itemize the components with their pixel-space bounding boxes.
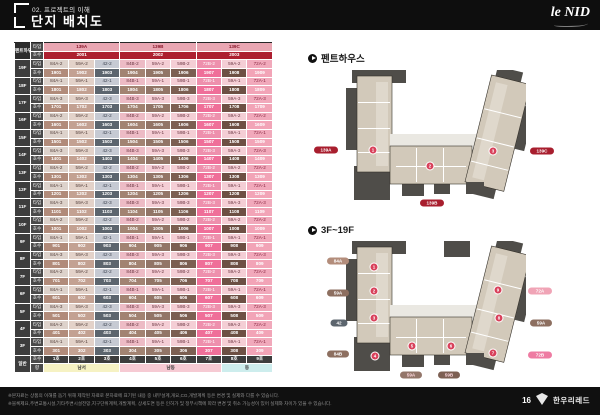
type-cell: 84B-1 bbox=[120, 286, 145, 295]
type-cell: 72B-2 bbox=[196, 321, 221, 330]
unit-cell: 803 bbox=[94, 260, 119, 269]
unit-cell: 1803 bbox=[94, 86, 119, 95]
unit-cell: 609 bbox=[247, 294, 273, 303]
floor-label: 5F bbox=[15, 303, 31, 320]
unit-number-badge: 4 bbox=[371, 352, 380, 361]
plan-block bbox=[443, 148, 444, 182]
type-cell: 59A-2 bbox=[222, 216, 247, 225]
type-cell: 72B-2 bbox=[196, 112, 221, 121]
type-cell: 59A-1 bbox=[69, 77, 94, 86]
penthouse-floor-plan-svg bbox=[346, 70, 526, 210]
page-number: 16 bbox=[522, 396, 531, 405]
general-label: 일반 bbox=[15, 355, 31, 372]
type-cell: 72B-1 bbox=[196, 77, 221, 86]
row-label-unit: 호수 bbox=[31, 208, 44, 217]
type-cell: 84A-2 bbox=[44, 216, 69, 225]
type-cell: 59A-2 bbox=[222, 321, 247, 330]
type-cell: 84B-3 bbox=[120, 95, 145, 104]
type-cell: 84A-2 bbox=[44, 60, 69, 69]
floor-label: 7F bbox=[15, 268, 31, 285]
unit-cell: 301 bbox=[44, 347, 69, 356]
type-cell: 59B-2 bbox=[171, 60, 196, 69]
general-unit-cell: 5호 bbox=[145, 355, 170, 364]
type-cell: 59A-3 bbox=[145, 303, 170, 312]
unit-cell: 1808 bbox=[222, 86, 247, 95]
plan-block bbox=[390, 305, 476, 317]
plan-block bbox=[444, 241, 470, 257]
unit-number-badge: 3 bbox=[370, 314, 379, 323]
brand-logo: le NID bbox=[551, 5, 590, 21]
type-cell: 72A-2 bbox=[247, 60, 273, 69]
plan-block bbox=[466, 353, 484, 365]
unit-cell: 306 bbox=[171, 347, 196, 356]
table-row: 10F타입84A-259A-242-284B-259A-259B-272B-25… bbox=[15, 216, 273, 225]
unit-cell: 1204 bbox=[120, 190, 145, 199]
row-label-unit: 호수 bbox=[31, 347, 44, 356]
floor-label: 15F bbox=[15, 129, 31, 146]
unit-cell: 1508 bbox=[222, 138, 247, 147]
table-row: 일반호수1호2호3호4호5호6호7호8호9호 bbox=[15, 355, 273, 364]
unit-type-pill: 59A bbox=[327, 290, 349, 297]
unit-cell: 408 bbox=[222, 329, 247, 338]
unit-cell: 1206 bbox=[171, 190, 196, 199]
type-cell: 72B-3 bbox=[196, 147, 221, 156]
type-cell: 84A-2 bbox=[44, 164, 69, 173]
unit-cell: 701 bbox=[44, 277, 69, 286]
type-cell: 59A-3 bbox=[145, 199, 170, 208]
type-cell: 59B-3 bbox=[171, 147, 196, 156]
disclaimer-text: ※본자료는 상품의 이해를 돕기 위해 제작된 자료로 본자료에 표기된 내용 … bbox=[8, 392, 332, 408]
row-label-unit: 호수 bbox=[31, 225, 44, 234]
unit-cell: 1903 bbox=[94, 69, 119, 78]
type-cell: 84A-1 bbox=[44, 77, 69, 86]
type-cell: 42-1 bbox=[94, 182, 119, 191]
table-row: 호수100110021003100410051006100710081009 bbox=[15, 225, 273, 234]
type-cell: 42-2 bbox=[94, 112, 119, 121]
unit-cell: 502 bbox=[69, 312, 94, 321]
row-label-type: 타입 bbox=[31, 286, 44, 295]
floors-plan-heading-label: 3F~19F bbox=[321, 225, 354, 236]
unit-cell: 1506 bbox=[171, 138, 196, 147]
unit-cell: 1806 bbox=[171, 86, 196, 95]
unit-cell: 1704 bbox=[120, 103, 145, 112]
unit-cell: 1706 bbox=[171, 103, 196, 112]
type-cell: 42-3 bbox=[94, 95, 119, 104]
plan-block bbox=[390, 317, 472, 355]
unit-cell: 1909 bbox=[247, 69, 273, 78]
unit-cell: 302 bbox=[69, 347, 94, 356]
unit-cell: 1606 bbox=[171, 121, 196, 130]
unit-cell: 1007 bbox=[196, 225, 221, 234]
unit-cell: 1504 bbox=[120, 138, 145, 147]
type-cell: 59A-2 bbox=[69, 216, 94, 225]
unit-type-pill: 84A bbox=[327, 258, 349, 265]
unit-cell: 1108 bbox=[222, 208, 247, 217]
type-cell: 59A-3 bbox=[145, 147, 170, 156]
type-cell: 59A-1 bbox=[69, 286, 94, 295]
table-row: 호수110111021103110411051106110711081109 bbox=[15, 208, 273, 217]
unit-cell: 508 bbox=[222, 312, 247, 321]
general-unit-cell: 7호 bbox=[196, 355, 221, 364]
type-cell: 72A-2 bbox=[247, 321, 273, 330]
type-cell: 42-2 bbox=[94, 216, 119, 225]
plan-block bbox=[416, 319, 417, 353]
bracket-decoration-top bbox=[14, 3, 29, 13]
floor-label: 8F bbox=[15, 251, 31, 268]
type-cell: 59A-3 bbox=[222, 199, 247, 208]
unit-cell: 804 bbox=[120, 260, 145, 269]
brand-diamond-icon bbox=[536, 396, 548, 405]
type-cell: 59B-2 bbox=[171, 268, 196, 277]
unit-cell: 601 bbox=[44, 294, 69, 303]
penthouse-plan-heading: 펜트하우스 bbox=[308, 51, 365, 65]
direction-cell: 남동 bbox=[120, 364, 222, 373]
unit-cell: 904 bbox=[120, 242, 145, 251]
table-row: 12F타입84A-159A-142-184B-159A-159B-172B-15… bbox=[15, 182, 273, 191]
unit-cell: 1402 bbox=[69, 155, 94, 164]
footer-bar: ※본자료는 상품의 이해를 돕기 위해 제작된 자료로 본자료에 표기된 내용 … bbox=[0, 387, 600, 415]
row-label-unit: 호수 bbox=[31, 242, 44, 251]
play-icon bbox=[308, 54, 317, 63]
floor-label: 3F bbox=[15, 338, 31, 355]
unit-cell: 1708 bbox=[222, 103, 247, 112]
unit-cell: 1306 bbox=[171, 173, 196, 182]
direction-cell: 동 bbox=[222, 364, 273, 373]
floor-label: 11F bbox=[15, 199, 31, 216]
table-row: 호수150115021503150415051506150715081509 bbox=[15, 138, 273, 147]
unit-type-pill: 59A bbox=[400, 372, 422, 379]
type-cell: 59A-1 bbox=[145, 234, 170, 243]
unit-cell: 901 bbox=[44, 242, 69, 251]
type-cell: 59A-3 bbox=[69, 251, 94, 260]
unit-cell: 509 bbox=[247, 312, 273, 321]
unit-cell: 1908 bbox=[222, 69, 247, 78]
row-label-unit: 호수 bbox=[31, 103, 44, 112]
type-cell: 84B-3 bbox=[120, 251, 145, 260]
type-cell: 59A-2 bbox=[145, 216, 170, 225]
unit-cell: 706 bbox=[171, 277, 196, 286]
type-cell: 72A-3 bbox=[247, 199, 273, 208]
row-label-unit: 호수 bbox=[31, 190, 44, 199]
type-cell: 59B-3 bbox=[171, 199, 196, 208]
type-cell: 59B-1 bbox=[171, 338, 196, 347]
type-cell: 59A-3 bbox=[145, 251, 170, 260]
table-row: 17F타입84A-359A-342-384B-359A-359B-372B-35… bbox=[15, 95, 273, 104]
unit-cell: 1901 bbox=[44, 69, 69, 78]
unit-cell: 902 bbox=[69, 242, 94, 251]
type-cell: 84B-1 bbox=[120, 234, 145, 243]
unit-cell: 1407 bbox=[196, 155, 221, 164]
unit-cell: 401 bbox=[44, 329, 69, 338]
unit-cell: 1005 bbox=[145, 225, 170, 234]
table-row: 호수901902903904905906907908909 bbox=[15, 242, 273, 251]
type-cell: 59A-2 bbox=[69, 268, 94, 277]
unit-type-pill: 84B bbox=[327, 351, 349, 358]
unit-cell: 403 bbox=[94, 329, 119, 338]
table-row: 11F타입84A-359A-342-384B-359A-359B-372B-35… bbox=[15, 199, 273, 208]
row-label-unit: 호수 bbox=[31, 69, 44, 78]
unit-cell: 809 bbox=[247, 260, 273, 269]
type-cell: 72B-2 bbox=[196, 216, 221, 225]
type-cell: 42-1 bbox=[94, 338, 119, 347]
unit-cell: 704 bbox=[120, 277, 145, 286]
unit-cell: 1601 bbox=[44, 121, 69, 130]
row-label-type: 타입 bbox=[31, 112, 44, 121]
unit-cell: 1303 bbox=[94, 173, 119, 182]
type-cell: 84B-1 bbox=[120, 129, 145, 138]
row-label-unit: 호수 bbox=[31, 329, 44, 338]
type-cell: 59A-2 bbox=[145, 321, 170, 330]
unit-cell: 1502 bbox=[69, 138, 94, 147]
unit-number-badge: 2 bbox=[370, 287, 379, 296]
slide-page: 02. 프로젝트의 이해 단지 배치도 le NID 펜트하우스타입139A13… bbox=[0, 0, 600, 415]
type-cell: 72B-2 bbox=[196, 268, 221, 277]
unit-cell: 1203 bbox=[94, 190, 119, 199]
unit-cell: 802 bbox=[69, 260, 94, 269]
unit-cell: 1201 bbox=[44, 190, 69, 199]
type-cell: 59B-1 bbox=[171, 234, 196, 243]
unit-cell: 806 bbox=[171, 260, 196, 269]
unit-cell: 808 bbox=[222, 260, 247, 269]
unit-cell: 1603 bbox=[94, 121, 119, 130]
penthouse-unit-cell: 2002 bbox=[120, 51, 196, 60]
bracket-decoration-bottom bbox=[14, 17, 25, 28]
table-row: 9F타입84A-159A-142-184B-159A-159B-172B-159… bbox=[15, 234, 273, 243]
unit-type-pill: 139A bbox=[314, 147, 338, 154]
unit-cell: 1705 bbox=[145, 103, 170, 112]
unit-cell: 907 bbox=[196, 242, 221, 251]
unit-cell: 1802 bbox=[69, 86, 94, 95]
general-unit-cell: 8호 bbox=[222, 355, 247, 364]
type-cell: 59A-2 bbox=[222, 112, 247, 121]
type-cell: 72B-3 bbox=[196, 251, 221, 260]
unit-table-wrap: 펜트하우스타입139A139B139C호수20012002200319F타입84… bbox=[14, 42, 273, 373]
type-cell: 84A-1 bbox=[44, 338, 69, 347]
unit-cell: 406 bbox=[171, 329, 196, 338]
unit-cell: 909 bbox=[247, 242, 273, 251]
unit-cell: 602 bbox=[69, 294, 94, 303]
floor-label: 16F bbox=[15, 112, 31, 129]
type-cell: 84A-2 bbox=[44, 321, 69, 330]
top-bar: 02. 프로젝트의 이해 단지 배치도 le NID bbox=[0, 0, 600, 30]
type-cell: 72A-2 bbox=[247, 216, 273, 225]
type-cell: 84B-2 bbox=[120, 164, 145, 173]
plan-block bbox=[358, 128, 390, 129]
unit-cell: 1405 bbox=[145, 155, 170, 164]
unit-cell: 607 bbox=[196, 294, 221, 303]
type-cell: 42-1 bbox=[94, 129, 119, 138]
table-row: 향남서남동동 bbox=[15, 364, 273, 373]
table-row: 15F타입84A-159A-142-184B-159A-159B-172B-15… bbox=[15, 129, 273, 138]
penthouse-unit-cell: 2003 bbox=[196, 51, 272, 60]
unit-cell: 709 bbox=[247, 277, 273, 286]
table-row: 18F타입84A-159A-142-184B-159A-159B-172B-15… bbox=[15, 77, 273, 86]
penthouse-unit-cell: 2001 bbox=[44, 51, 120, 60]
plan-block bbox=[402, 184, 424, 196]
type-cell: 72B-1 bbox=[196, 182, 221, 191]
type-cell: 42-2 bbox=[94, 268, 119, 277]
unit-cell: 1404 bbox=[120, 155, 145, 164]
unit-cell: 402 bbox=[69, 329, 94, 338]
unit-cell: 1309 bbox=[247, 173, 273, 182]
unit-type-pill: 139C bbox=[530, 148, 554, 155]
disclaimer-line-2: ※블록제요,주변교통시설,기타주변시설전망,지구단위계획,개발계획, 상세도면 … bbox=[8, 400, 332, 408]
unit-cell: 407 bbox=[196, 329, 221, 338]
unit-cell: 507 bbox=[196, 312, 221, 321]
floor-label: 9F bbox=[15, 234, 31, 251]
unit-cell: 1906 bbox=[171, 69, 196, 78]
floor-label: 13F bbox=[15, 164, 31, 181]
type-cell: 59A-1 bbox=[69, 129, 94, 138]
type-cell: 84B-1 bbox=[120, 182, 145, 191]
type-cell: 84B-2 bbox=[120, 60, 145, 69]
type-cell: 42-1 bbox=[94, 234, 119, 243]
unit-cell: 1006 bbox=[171, 225, 196, 234]
penthouse-type-cell: 139C bbox=[196, 43, 272, 52]
floor-label: 10F bbox=[15, 216, 31, 233]
unit-cell: 1301 bbox=[44, 173, 69, 182]
unit-cell: 1207 bbox=[196, 190, 221, 199]
unit-cell: 1602 bbox=[69, 121, 94, 130]
type-cell: 72B-3 bbox=[196, 199, 221, 208]
unit-number-badge: 2 bbox=[426, 162, 435, 171]
unit-cell: 1008 bbox=[222, 225, 247, 234]
table-row: 8F타입84A-359A-342-384B-359A-359B-372B-359… bbox=[15, 251, 273, 260]
row-label-type: 타입 bbox=[31, 199, 44, 208]
type-cell: 59B-2 bbox=[171, 112, 196, 121]
table-row: 호수601602603604605606607608609 bbox=[15, 294, 273, 303]
plan-block bbox=[416, 148, 417, 182]
type-cell: 59A-1 bbox=[222, 338, 247, 347]
plan-block bbox=[434, 355, 450, 365]
table-row: 13F타입84A-259A-242-284B-259A-259B-272B-25… bbox=[15, 164, 273, 173]
type-cell: 72B-1 bbox=[196, 286, 221, 295]
table-row: 19F타입84A-259A-242-284B-259A-259B-272B-25… bbox=[15, 60, 273, 69]
unit-cell: 1507 bbox=[196, 138, 221, 147]
type-cell: 84A-2 bbox=[44, 112, 69, 121]
type-cell: 59B-1 bbox=[171, 182, 196, 191]
type-cell: 84A-3 bbox=[44, 147, 69, 156]
unit-number-badge: 8 bbox=[495, 314, 504, 323]
type-cell: 72A-1 bbox=[247, 182, 273, 191]
type-cell: 59A-1 bbox=[222, 286, 247, 295]
unit-number-badge: 7 bbox=[489, 349, 498, 358]
penthouse-type-cell: 139A bbox=[44, 43, 120, 52]
unit-cell: 1809 bbox=[247, 86, 273, 95]
unit-cell: 708 bbox=[222, 277, 247, 286]
unit-type-pill: 72A bbox=[528, 288, 552, 295]
play-icon bbox=[308, 226, 317, 235]
type-cell: 59B-2 bbox=[171, 321, 196, 330]
type-cell: 72B-2 bbox=[196, 164, 221, 173]
type-cell: 84B-1 bbox=[120, 338, 145, 347]
plan-block bbox=[358, 299, 390, 300]
type-cell: 42-3 bbox=[94, 199, 119, 208]
table-row: 14F타입84A-359A-342-384B-359A-359B-372B-35… bbox=[15, 147, 273, 156]
type-cell: 59A-1 bbox=[145, 286, 170, 295]
general-unit-cell: 2호 bbox=[69, 355, 94, 364]
unit-cell: 1003 bbox=[94, 225, 119, 234]
type-cell: 84A-2 bbox=[44, 268, 69, 277]
row-label-unit: 호수 bbox=[31, 51, 44, 60]
type-cell: 59B-3 bbox=[171, 303, 196, 312]
penthouse-type-cell: 139B bbox=[120, 43, 196, 52]
type-cell: 72A-2 bbox=[247, 112, 273, 121]
unit-cell: 1205 bbox=[145, 190, 170, 199]
table-row: 호수170117021703170417051706170717081709 bbox=[15, 103, 273, 112]
direction-cell: 남서 bbox=[44, 364, 120, 373]
row-label-type: 타입 bbox=[31, 95, 44, 104]
row-label-type: 타입 bbox=[31, 60, 44, 69]
type-cell: 72A-3 bbox=[247, 303, 273, 312]
table-row: 16F타입84A-259A-242-284B-259A-259B-272B-25… bbox=[15, 112, 273, 121]
type-cell: 42-1 bbox=[94, 286, 119, 295]
type-cell: 72B-1 bbox=[196, 129, 221, 138]
type-cell: 42-1 bbox=[94, 77, 119, 86]
type-cell: 84B-3 bbox=[120, 147, 145, 156]
type-cell: 59A-3 bbox=[222, 303, 247, 312]
row-label-type: 타입 bbox=[31, 164, 44, 173]
unit-cell: 1608 bbox=[222, 121, 247, 130]
floor-label: 18F bbox=[15, 77, 31, 94]
unit-cell: 1604 bbox=[120, 121, 145, 130]
unit-cell: 1209 bbox=[247, 190, 273, 199]
unit-cell: 608 bbox=[222, 294, 247, 303]
type-cell: 84B-2 bbox=[120, 216, 145, 225]
unit-number-badge: 1 bbox=[369, 146, 378, 155]
unit-cell: 1106 bbox=[171, 208, 196, 217]
unit-cell: 1702 bbox=[69, 103, 94, 112]
row-label-type: 타입 bbox=[31, 129, 44, 138]
unit-cell: 1701 bbox=[44, 103, 69, 112]
table-row: 호수501502503504505506507508509 bbox=[15, 312, 273, 321]
unit-cell: 604 bbox=[120, 294, 145, 303]
type-cell: 84A-3 bbox=[44, 199, 69, 208]
type-cell: 72A-3 bbox=[247, 251, 273, 260]
row-label-unit: 호수 bbox=[31, 86, 44, 95]
corner-label: 펜트하우스 bbox=[15, 43, 31, 60]
type-cell: 59A-2 bbox=[69, 60, 94, 69]
type-cell: 59A-1 bbox=[69, 182, 94, 191]
unit-cell: 504 bbox=[120, 312, 145, 321]
unit-cell: 1503 bbox=[94, 138, 119, 147]
unit-cell: 1009 bbox=[247, 225, 273, 234]
plan-block bbox=[396, 337, 466, 338]
unit-cell: 304 bbox=[120, 347, 145, 356]
unit-cell: 801 bbox=[44, 260, 69, 269]
type-cell: 72A-2 bbox=[247, 268, 273, 277]
type-cell: 59A-3 bbox=[222, 147, 247, 156]
unit-cell: 501 bbox=[44, 312, 69, 321]
unit-cell: 1607 bbox=[196, 121, 221, 130]
general-unit-cell: 4호 bbox=[120, 355, 145, 364]
plan-block bbox=[358, 102, 390, 103]
footer-right-group: 16 한우리레드 bbox=[522, 395, 590, 406]
type-cell: 59B-2 bbox=[171, 164, 196, 173]
plan-block bbox=[402, 355, 424, 367]
floor-label: 17F bbox=[15, 95, 31, 112]
floor-label: 12F bbox=[15, 182, 31, 199]
type-cell: 84B-1 bbox=[120, 77, 145, 86]
type-cell: 72B-3 bbox=[196, 95, 221, 104]
unit-cell: 307 bbox=[196, 347, 221, 356]
unit-type-pill: 139B bbox=[420, 200, 444, 207]
type-cell: 84B-2 bbox=[120, 321, 145, 330]
unit-cell: 805 bbox=[145, 260, 170, 269]
type-cell: 84A-1 bbox=[44, 286, 69, 295]
type-cell: 84A-1 bbox=[44, 129, 69, 138]
type-cell: 59A-2 bbox=[145, 164, 170, 173]
